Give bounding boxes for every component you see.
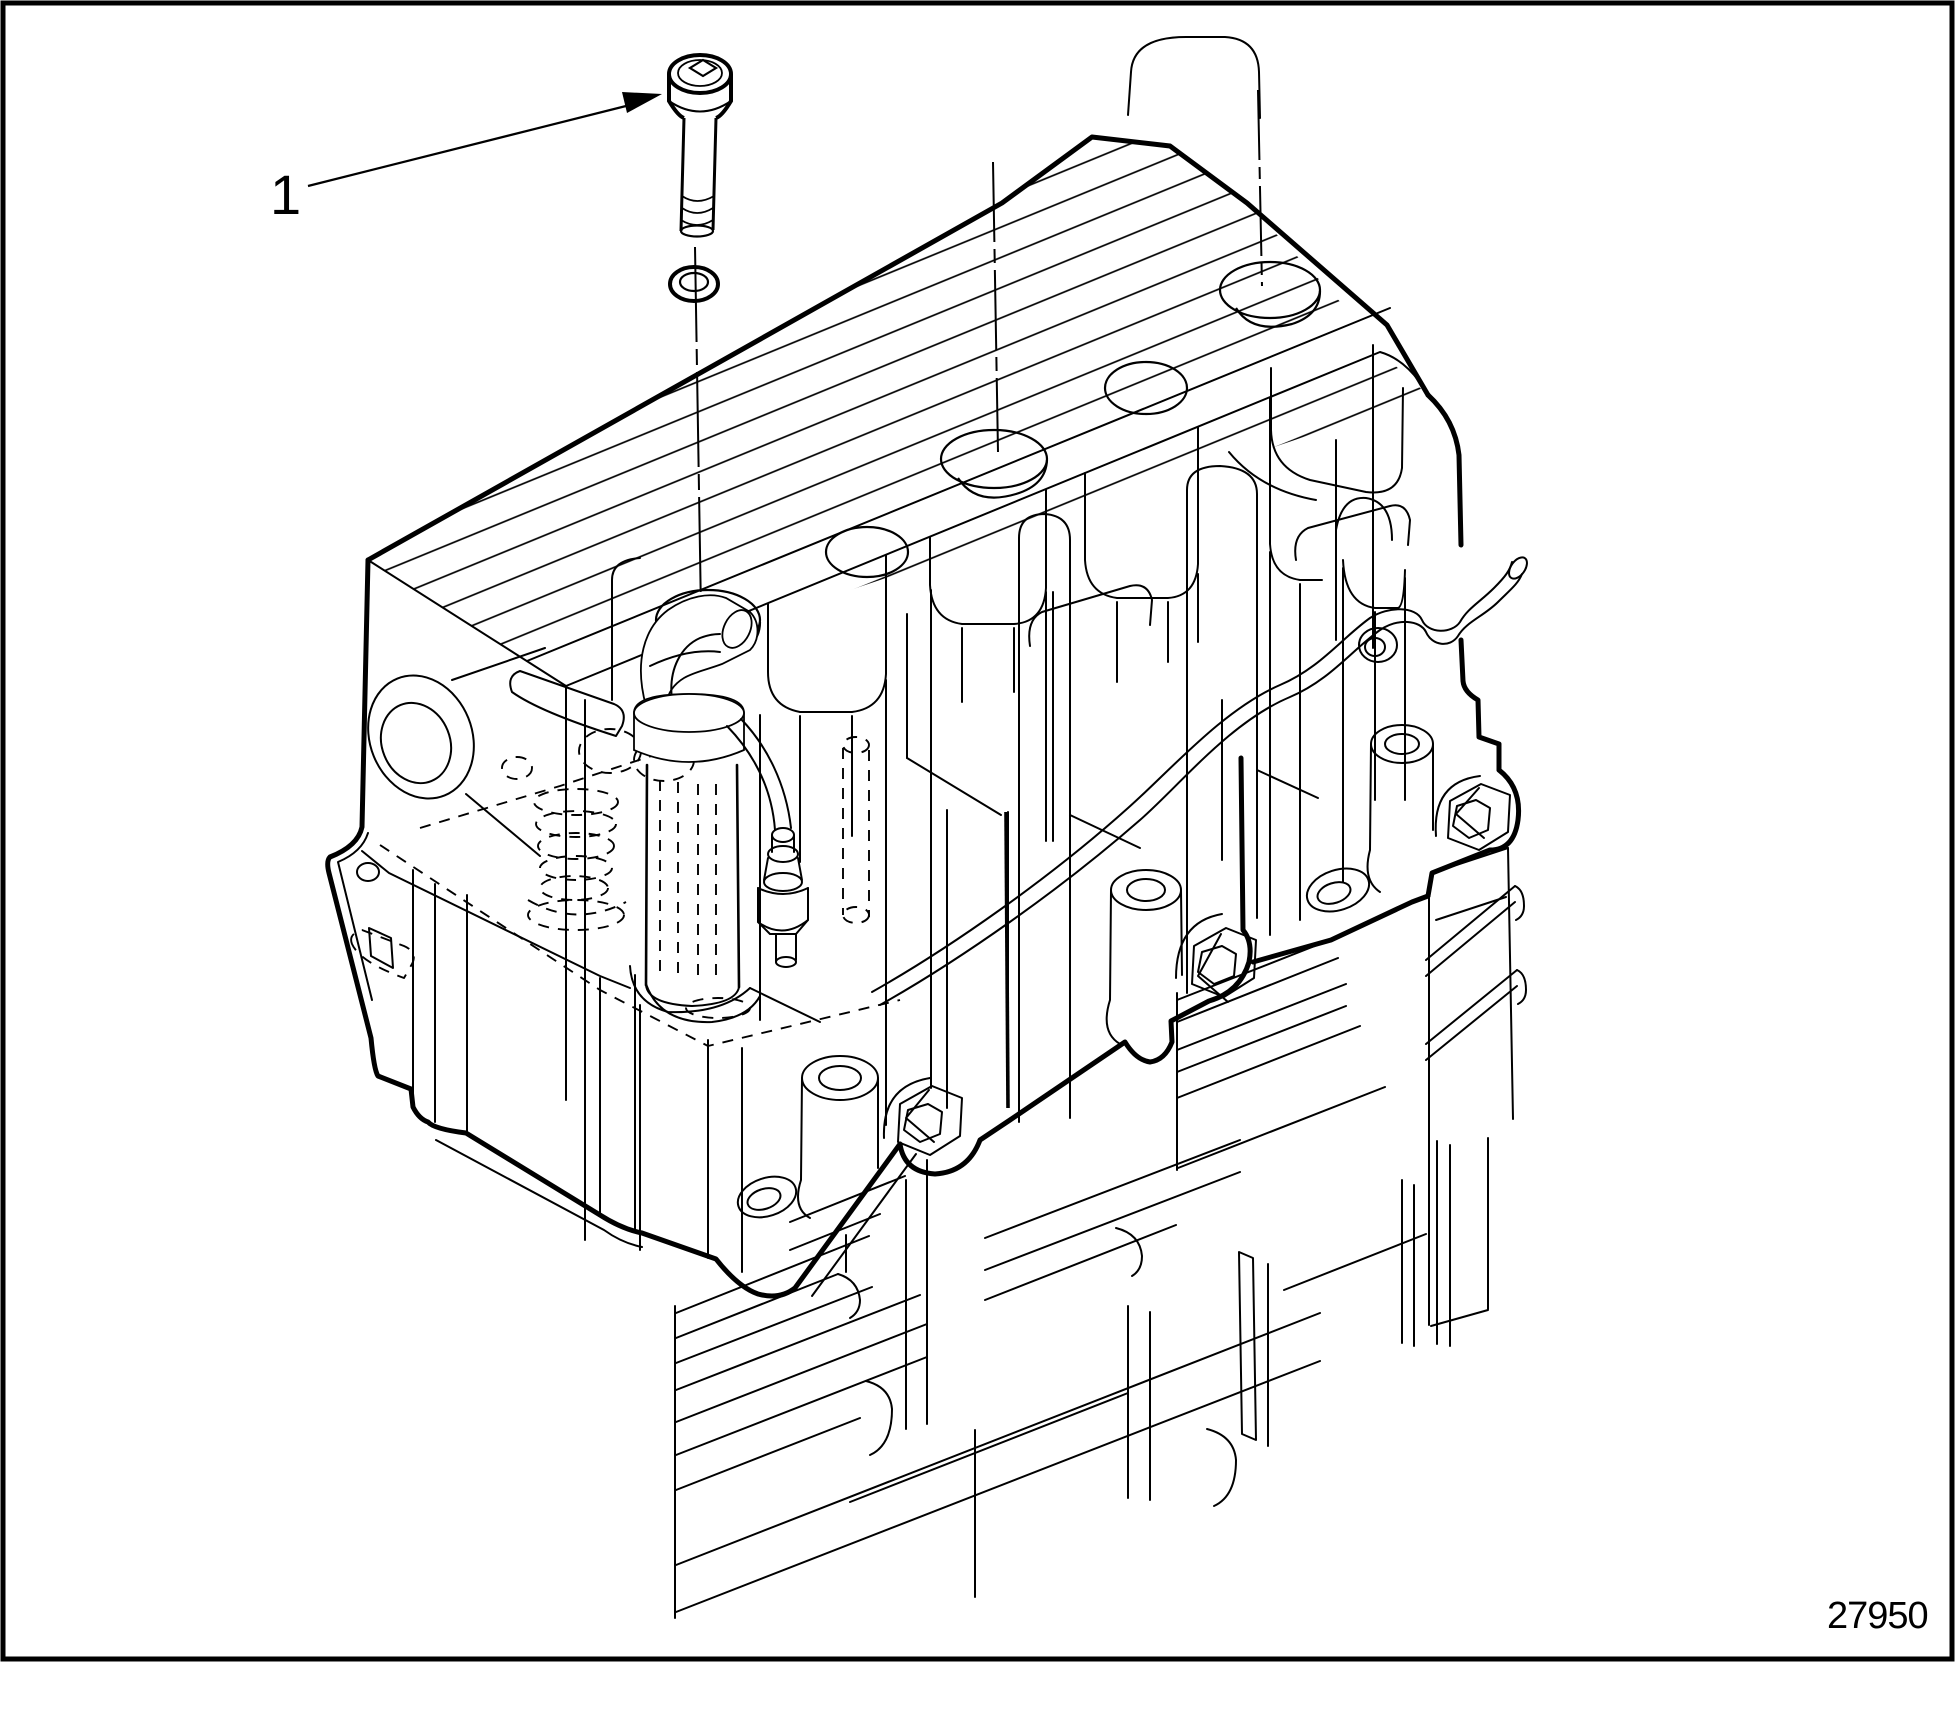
svg-text:1: 1 [270, 163, 301, 226]
svg-text:27950: 27950 [1827, 1595, 1928, 1637]
